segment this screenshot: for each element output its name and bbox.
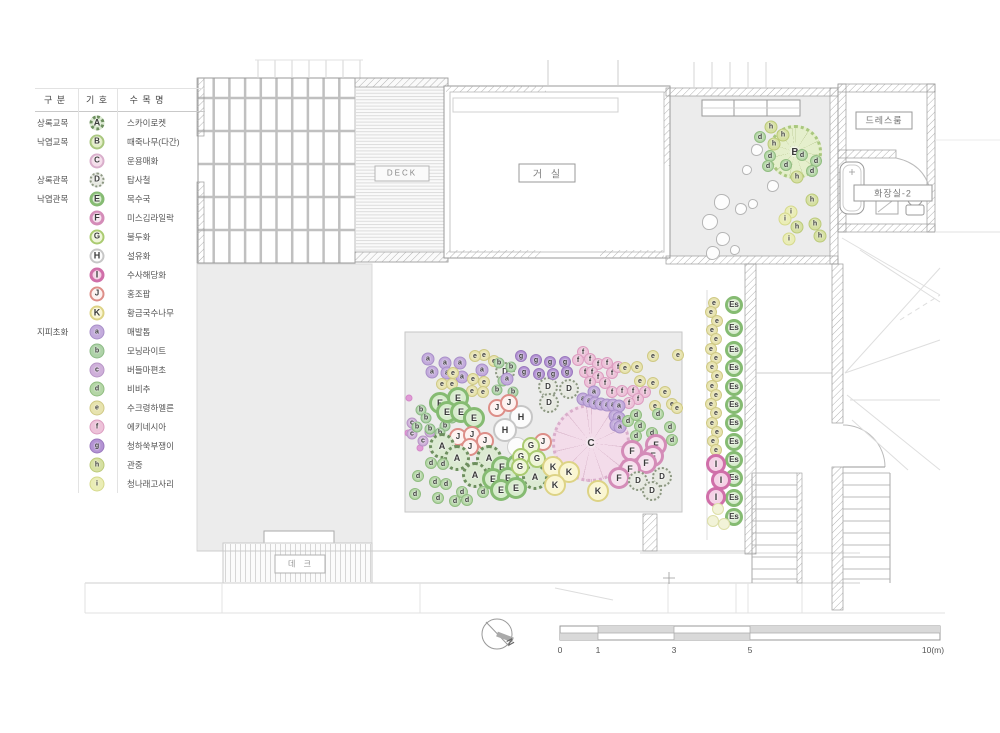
planting-plan: 구 분 기 호 수 목 명 상록교목A스카이로켓낙엽교목B때죽나무(다간)C운용… — [0, 0, 1000, 733]
legend-symbol-K: K — [90, 305, 105, 320]
legend-symbol-C: C — [90, 153, 105, 168]
plant-circle-h: h — [765, 121, 778, 134]
legend-top-rule — [35, 88, 205, 89]
plant-circle-e: e — [647, 377, 659, 389]
legend-symbol-A: A — [90, 115, 105, 130]
legend-plant-name: 홍조팝 — [127, 288, 150, 300]
plant-circle-D: D — [539, 393, 559, 413]
plant-circle-e: e — [477, 386, 489, 398]
legend-row: I수사해당화 — [35, 265, 207, 284]
living-room-label: 거 실 — [533, 166, 563, 181]
plant-circle-d: d — [425, 457, 437, 469]
plant-circle-Es: Es — [725, 341, 743, 359]
legend-category: 상록교목 — [37, 117, 68, 129]
legend-row: 낙엽교목B때죽나무(다간) — [35, 132, 207, 151]
legend-row: e수크령하멜른 — [35, 398, 207, 417]
plant-circle-h: h — [768, 138, 781, 151]
plant-circle-J: J — [500, 394, 518, 412]
legend-symbol-g: g — [90, 438, 105, 453]
plant-circle-Es: Es — [725, 378, 743, 396]
plant-circle-h: h — [791, 221, 804, 234]
legend-row: i청나래고사리 — [35, 474, 207, 493]
plant-circle-g: g — [547, 368, 559, 380]
plant-circle-c: c — [418, 436, 429, 447]
legend-plant-name: 스카이로켓 — [127, 117, 166, 129]
legend-plant-name: 때죽나무(다간) — [127, 136, 180, 148]
plant-circle-d: d — [762, 160, 774, 172]
plant-circle-Es: Es — [725, 296, 743, 314]
plant-circle-d: d — [440, 478, 452, 490]
legend-category: 낙엽관목 — [37, 193, 68, 205]
plant-circle-b: b — [506, 362, 517, 373]
legend-plant-name: 목수국 — [127, 193, 150, 205]
legend-symbol-H: H — [90, 248, 105, 263]
plant-circle-d: d — [652, 408, 664, 420]
deck-room-label: DECK — [387, 169, 417, 178]
legend-plant-name: 에키네시아 — [127, 421, 166, 433]
legend-plant-name: 수크령하멜른 — [127, 402, 174, 414]
scale-tick-5: 5 — [748, 645, 753, 655]
plant-circle-d: d — [664, 421, 676, 433]
legend-symbol-c: c — [90, 362, 105, 377]
legend-symbol-G: G — [90, 229, 105, 244]
plant-circle-d: d — [461, 494, 473, 506]
plant-circle-Es: Es — [725, 396, 743, 414]
legend-plant-name: 비비추 — [127, 383, 150, 395]
legend-header-category: 구 분 — [44, 93, 66, 106]
legend-row: f에키네시아 — [35, 417, 207, 436]
plant-circle-d: d — [806, 165, 818, 177]
legend-plant-name: 미스김라일락 — [127, 212, 174, 224]
legend-plant-name: 운용매화 — [127, 155, 158, 167]
legend-plant-name: 관중 — [127, 459, 143, 471]
plant-circle-e: e — [671, 402, 683, 414]
plant-circle-g: g — [530, 354, 542, 366]
plant-circle-e: e — [631, 361, 643, 373]
plant-circle-d: d — [780, 159, 792, 171]
plant-circle-a: a — [501, 373, 514, 386]
legend-category: 지피초화 — [37, 326, 68, 338]
plant-circle-d: d — [437, 458, 449, 470]
plant-circle-d: d — [412, 470, 424, 482]
plant-dot — [406, 395, 413, 402]
plant-circle-g: g — [515, 350, 527, 362]
plant-circle-Es: Es — [725, 489, 743, 507]
plant-circle-G: G — [511, 458, 529, 476]
legend-header-name: 수 목 명 — [130, 93, 165, 106]
plant-circle-Es: Es — [725, 414, 743, 432]
plant-circle-g: g — [533, 368, 545, 380]
legend-row: d비비추 — [35, 379, 207, 398]
plant-circle-e: e — [659, 386, 671, 398]
legend-symbol-d: d — [90, 381, 105, 396]
plant-circle-F: F — [608, 467, 630, 489]
plant-circle-e: e — [634, 375, 646, 387]
plant-circle-h: h — [806, 194, 819, 207]
legend-row: F미스김라일락 — [35, 208, 207, 227]
legend-row: h관중 — [35, 455, 207, 474]
scale-tick-0: 0 — [558, 645, 563, 655]
legend-symbol-e: e — [90, 400, 105, 415]
plant-circle-a: a — [422, 353, 435, 366]
plant-circle-Es: Es — [725, 359, 743, 377]
plant-circle-b: b — [412, 422, 423, 433]
plant-circle-d: d — [666, 434, 678, 446]
legend-row: b모닝라이트 — [35, 341, 207, 360]
plant-circle-i — [718, 518, 730, 530]
legend-symbol-D: D — [90, 172, 105, 187]
plant-circle-b: b — [494, 358, 505, 369]
legend-symbol-I: I — [90, 267, 105, 282]
legend-plant-name: 매발톱 — [127, 326, 150, 338]
plant-circle-d: d — [754, 131, 766, 143]
plant-circle-f: f — [572, 354, 584, 366]
plant-circle-K: K — [587, 480, 609, 502]
legend-row: H설유화 — [35, 246, 207, 265]
legend-header-symbol: 기 호 — [86, 93, 108, 106]
plant-circle-E: E — [505, 477, 527, 499]
plant-circle-g: g — [518, 366, 530, 378]
plant-circle-d: d — [432, 492, 444, 504]
bathroom-label: 화장실-2 — [874, 187, 912, 200]
legend-plant-name: 버들마편초 — [127, 364, 166, 376]
legend-row: C운용매화 — [35, 151, 207, 170]
legend-symbol-i: i — [90, 476, 105, 491]
legend-plant-name: 청하쑥부쟁이 — [127, 440, 174, 452]
legend-symbol-a: a — [90, 324, 105, 339]
legend-plant-name: 모닝라이트 — [127, 345, 166, 357]
legend-row: G불두화 — [35, 227, 207, 246]
legend-symbol-B: B — [90, 134, 105, 149]
scale-tick-1: 1 — [596, 645, 601, 655]
legend-row: J홍조팝 — [35, 284, 207, 303]
legend-category: 낙엽교목 — [37, 136, 68, 148]
legend-row: 상록교목A스카이로켓 — [35, 113, 207, 132]
plant-circle-i: i — [783, 233, 796, 246]
plant-circle-h: h — [814, 230, 827, 243]
legend-symbol-F: F — [90, 210, 105, 225]
plant-circle-e: e — [647, 350, 659, 362]
plant-circle-K: K — [544, 474, 566, 496]
plant-circle-Es: Es — [725, 433, 743, 451]
plant-circle-D: D — [642, 481, 662, 501]
legend-plant-name: 황금국수나무 — [127, 307, 174, 319]
legend-category: 상록관목 — [37, 174, 68, 186]
legend-row: K황금국수나무 — [35, 303, 207, 322]
plant-circle-i — [712, 503, 724, 515]
legend-table: 구 분 기 호 수 목 명 상록교목A스카이로켓낙엽교목B때죽나무(다간)C운용… — [35, 88, 207, 496]
legend-plant-name: 수사해당화 — [127, 269, 166, 281]
plant-circle-Es: Es — [725, 319, 743, 337]
plant-circle-g: g — [561, 366, 573, 378]
plant-circle-d: d — [796, 149, 808, 161]
plant-circle-d: d — [409, 488, 421, 500]
legend-symbol-E: E — [90, 191, 105, 206]
plant-circle-e: e — [672, 349, 684, 361]
legend-row: 상록관목D탑사철 — [35, 170, 207, 189]
legend-plant-name: 설유화 — [127, 250, 150, 262]
dressroom-label: 드레스룸 — [865, 114, 902, 127]
legend-row: g청하쑥부쟁이 — [35, 436, 207, 455]
plant-circle-i: i — [779, 213, 792, 226]
plant-circle-g: g — [544, 356, 556, 368]
legend-plant-name: 청나래고사리 — [127, 478, 174, 490]
scale-tick-3: 3 — [672, 645, 677, 655]
plant-circle-b: b — [421, 413, 432, 424]
legend-symbol-h: h — [90, 457, 105, 472]
plant-circle-a: a — [426, 366, 439, 379]
legend-row: 낙엽관목E목수국 — [35, 189, 207, 208]
legend-symbol-J: J — [90, 286, 105, 301]
plant-circle-Es: Es — [725, 451, 743, 469]
legend-symbol-f: f — [90, 419, 105, 434]
legend-row: 지피초화a매발톱 — [35, 322, 207, 341]
plant-circle-b: b — [492, 385, 503, 396]
deck-kr-label: 데 크 — [288, 559, 314, 570]
legend-plant-name: 탑사철 — [127, 174, 150, 186]
scale-tick-10: 10(m) — [922, 645, 944, 655]
legend-row: c버들마편초 — [35, 360, 207, 379]
legend-plant-name: 불두화 — [127, 231, 150, 243]
legend-header-rule — [35, 111, 205, 112]
plant-circle-e: e — [619, 362, 631, 374]
legend-symbol-b: b — [90, 343, 105, 358]
plant-circle-h: h — [791, 171, 804, 184]
plant-circle-e: e — [469, 350, 481, 362]
